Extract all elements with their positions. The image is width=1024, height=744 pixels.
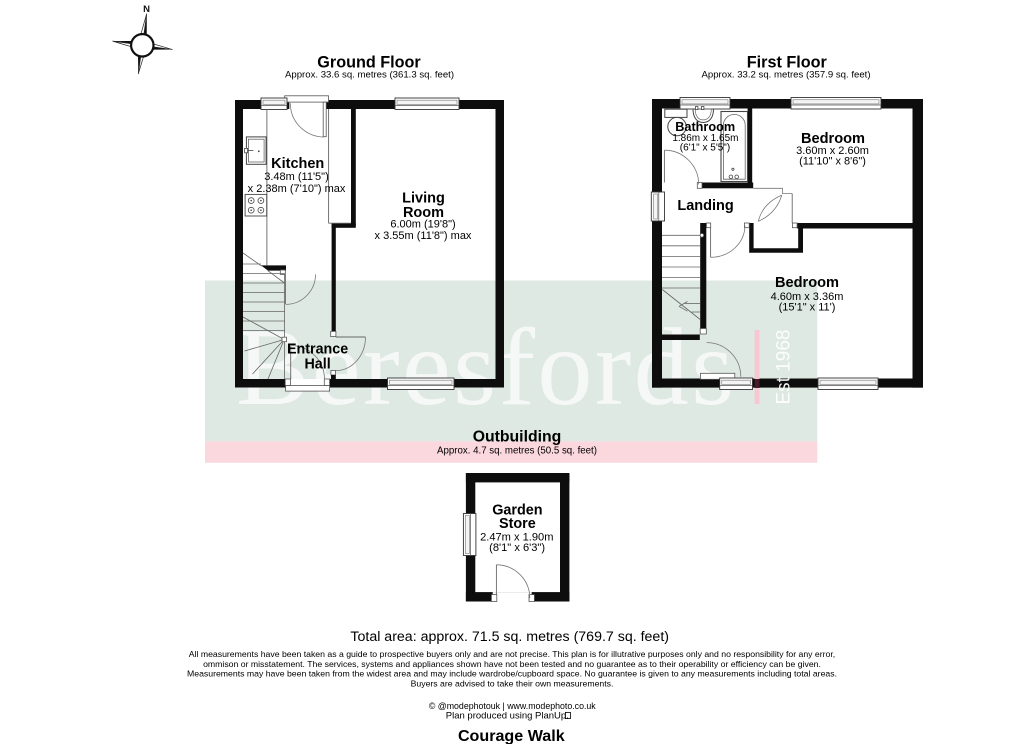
svg-text:Approx. 33.6 sq. metres (361.3: Approx. 33.6 sq. metres (361.3 sq. feet) — [285, 70, 454, 81]
svg-text:Kitchen: Kitchen — [271, 156, 324, 172]
svg-text:ommison or misstatement. The s: ommison or misstatement. The services, s… — [203, 659, 821, 669]
svg-text:(15'1" x 11'): (15'1" x 11') — [779, 301, 836, 313]
svg-text:(8'1" x 6'3"): (8'1" x 6'3") — [489, 542, 545, 554]
svg-text:All measurements have been tak: All measurements have been taken as a gu… — [189, 649, 835, 659]
svg-text:(11'10" x 8'6"): (11'10" x 8'6") — [799, 155, 866, 167]
svg-text:Approx. 4.7 sq. metres (50.5 s: Approx. 4.7 sq. metres (50.5 sq. feet) — [437, 446, 597, 457]
svg-text:Hall: Hall — [304, 357, 330, 373]
svg-text:Total area: approx. 71.5 sq. m: Total area: approx. 71.5 sq. metres (769… — [350, 629, 669, 645]
svg-text:Plan produced using PlanUp.: Plan produced using PlanUp. — [446, 711, 569, 722]
svg-text:6.00m (19'8"): 6.00m (19'8") — [390, 219, 455, 231]
svg-text:(6'1" x 5'5"): (6'1" x 5'5") — [680, 142, 730, 153]
svg-text:Buyers are advised to take the: Buyers are advised to take their own mea… — [411, 678, 614, 688]
svg-text:Store: Store — [499, 516, 536, 532]
svg-text:Bathroom: Bathroom — [675, 120, 735, 134]
svg-text:Approx. 33.2 sq. metres (357.9: Approx. 33.2 sq. metres (357.9 sq. feet) — [701, 70, 870, 81]
svg-text:Bedroom: Bedroom — [775, 275, 839, 291]
svg-text:x 2.38m (7'10") max: x 2.38m (7'10") max — [248, 183, 346, 195]
svg-text:3.48m (11'5"): 3.48m (11'5") — [264, 171, 329, 183]
svg-text:x 3.55m (11'8") max: x 3.55m (11'8") max — [375, 230, 472, 242]
svg-text:Courage Walk: Courage Walk — [458, 727, 565, 744]
svg-text:Landing: Landing — [677, 198, 733, 214]
svg-text:Measurements may have been tak: Measurements may have been taken from th… — [187, 669, 837, 679]
svg-text:Entrance: Entrance — [287, 342, 348, 358]
svg-text:Est 1968: Est 1968 — [774, 330, 795, 405]
svg-text:Outbuilding: Outbuilding — [473, 429, 562, 446]
svg-text:N: N — [143, 4, 150, 15]
svg-text:© @modephotouk | www.modephoto: © @modephotouk | www.modephoto.co.uk — [429, 701, 596, 711]
